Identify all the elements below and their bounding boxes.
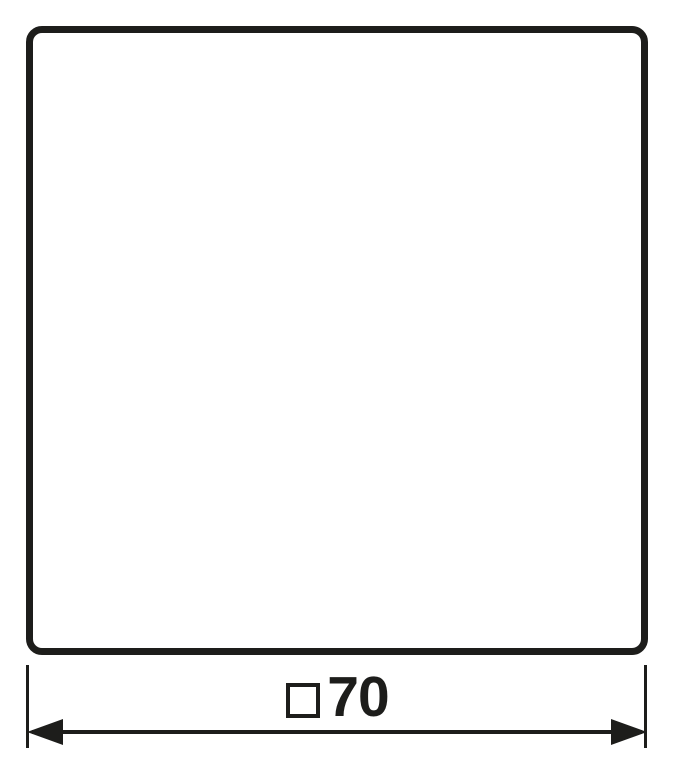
technical-drawing: 70 (0, 0, 675, 776)
arrow-left-icon (27, 719, 63, 745)
dimension-label: 70 (0, 672, 675, 720)
arrow-right-icon (611, 719, 647, 745)
dimension-line (32, 730, 642, 734)
square-dimension-icon (286, 683, 320, 718)
square-plate-outline (26, 26, 648, 655)
dimension-value: 70 (327, 674, 388, 720)
